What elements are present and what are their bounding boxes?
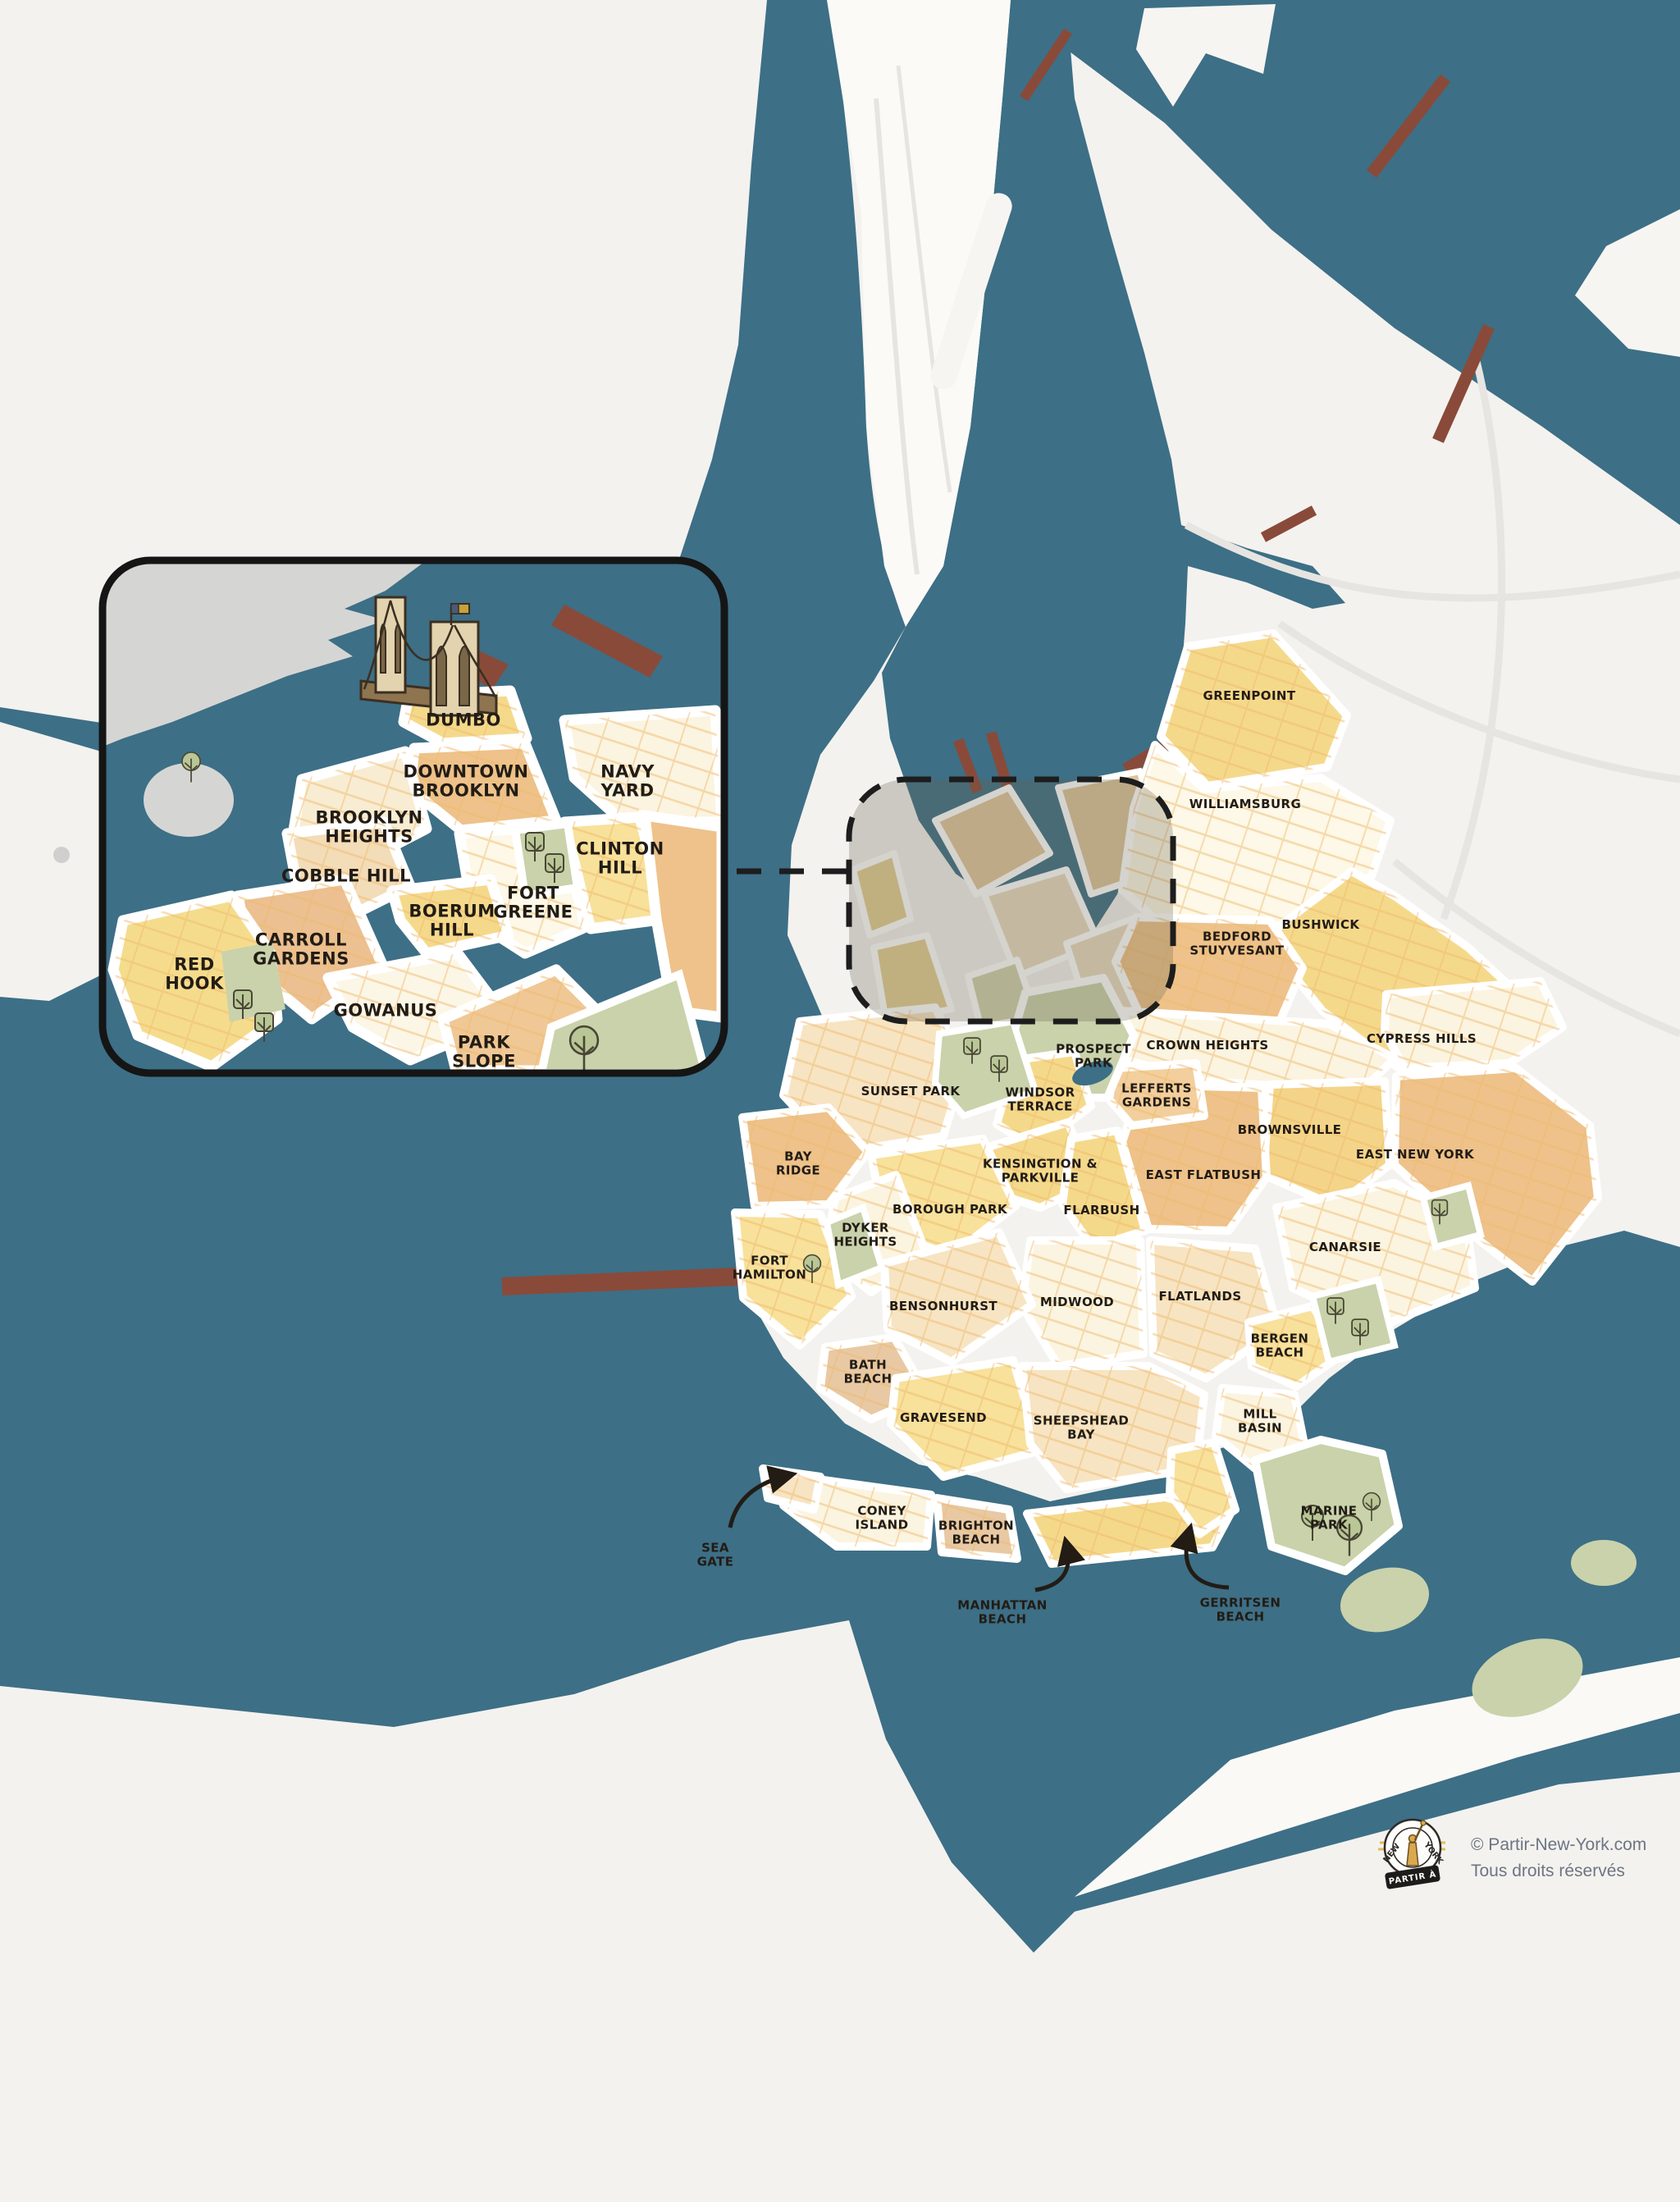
zoom-source-rect <box>849 779 1173 1021</box>
statue-torch <box>1421 1821 1426 1825</box>
inset-governors-island <box>144 763 234 837</box>
map-canvas: NEW YORK PARTIR À <box>0 0 1680 2202</box>
inset-map <box>103 560 724 1073</box>
liberty-island <box>53 847 70 863</box>
verrazzano-bridge <box>502 1277 738 1286</box>
statue-of-liberty-icon <box>1407 1843 1418 1866</box>
map-poster: NEW YORK PARTIR À GREENPOINTWILLIAMSBURG… <box>0 0 1680 2202</box>
eny-park <box>1423 1186 1481 1247</box>
marsh-island <box>1571 1540 1637 1586</box>
copyright-line2: Tous droits réservés <box>1471 1862 1625 1880</box>
copyright-line1: © Partir-New-York.com <box>1471 1836 1646 1853</box>
